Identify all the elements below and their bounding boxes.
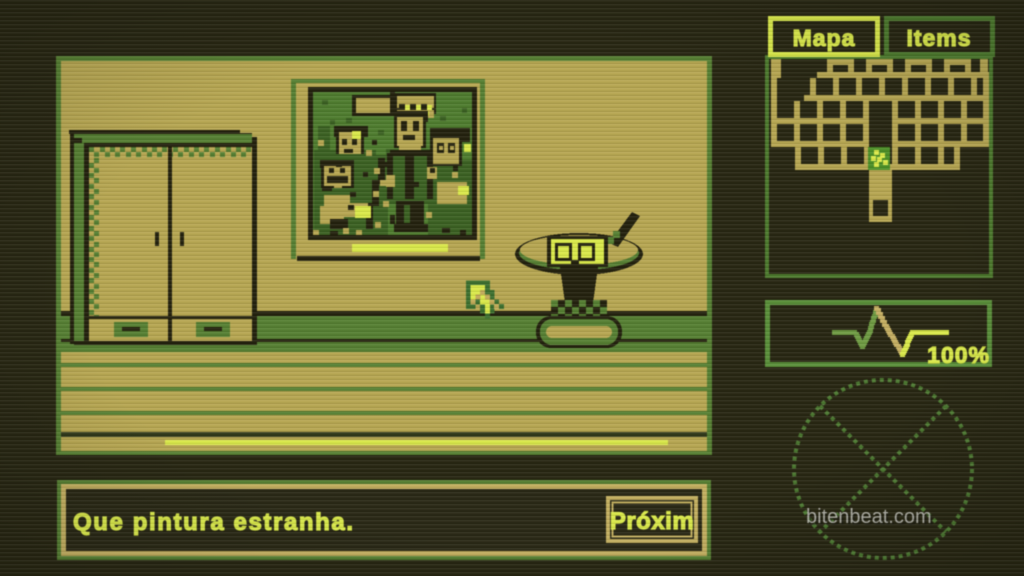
svg-text:Próxim: Próxim [610,508,694,535]
svg-text:bitenbeat.com: bitenbeat.com [806,506,932,528]
svg-text:Que pintura estranha.: Que pintura estranha. [73,509,355,536]
svg-text:Items: Items [906,25,971,51]
svg-text:Mapa: Mapa [793,25,856,51]
svg-text:100%: 100% [927,342,990,368]
